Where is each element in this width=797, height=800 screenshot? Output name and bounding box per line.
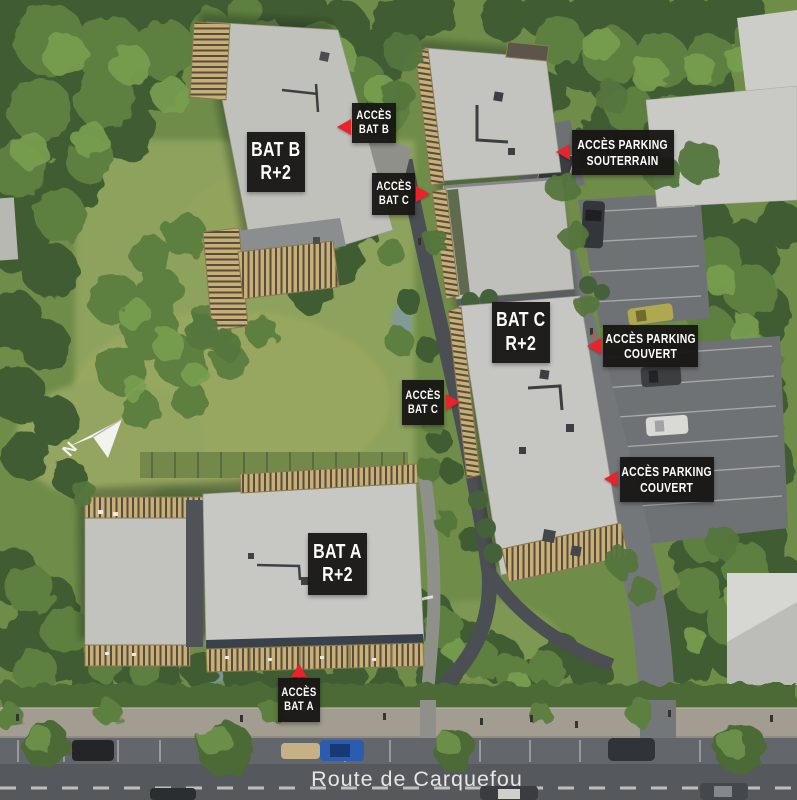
arrow-acces-bat-b <box>337 119 351 135</box>
label-acces-parking-souterrain: ACCÈS PARKINGSOUTERRAIN <box>572 130 674 175</box>
label-acces-bat-b: ACCÈSBAT B <box>352 103 396 143</box>
label-acces-bat-a: ACCÈSBAT A <box>278 678 320 722</box>
arrow-acces-bat-a <box>291 664 307 677</box>
parking-lane <box>0 738 797 765</box>
label-bat-b[interactable]: BAT BR+2 <box>247 132 305 192</box>
arrow-acces-parking-couvert-lower <box>604 471 618 487</box>
street-band: Route de Carquefou <box>0 684 797 800</box>
label-acces-parking-couvert-lower: ACCÈS PARKINGCOUVERT <box>620 457 714 502</box>
label-bat-a[interactable]: BAT AR+2 <box>308 533 367 595</box>
road-name: Route de Carquefou <box>311 767 523 791</box>
label-bat-c[interactable]: BAT CR+2 <box>492 302 550 363</box>
label-acces-bat-c-top: ACCÈSBAT C <box>372 173 415 215</box>
label-acces-parking-couvert-upper: ACCÈS PARKINGCOUVERT <box>603 325 698 367</box>
arrow-acces-parking-couvert-upper <box>587 338 601 354</box>
arrow-acces-bat-c-mid <box>446 394 460 410</box>
label-acces-bat-c-mid: ACCÈSBAT C <box>402 380 444 425</box>
arrow-acces-bat-c-top <box>416 186 430 202</box>
aerial-scene: Route de Carquefou N <box>0 0 797 800</box>
arrow-acces-parking-souterrain <box>556 144 570 160</box>
site-plan: Route de Carquefou N BAT BR+2 BAT CR+2 B… <box>0 0 797 800</box>
